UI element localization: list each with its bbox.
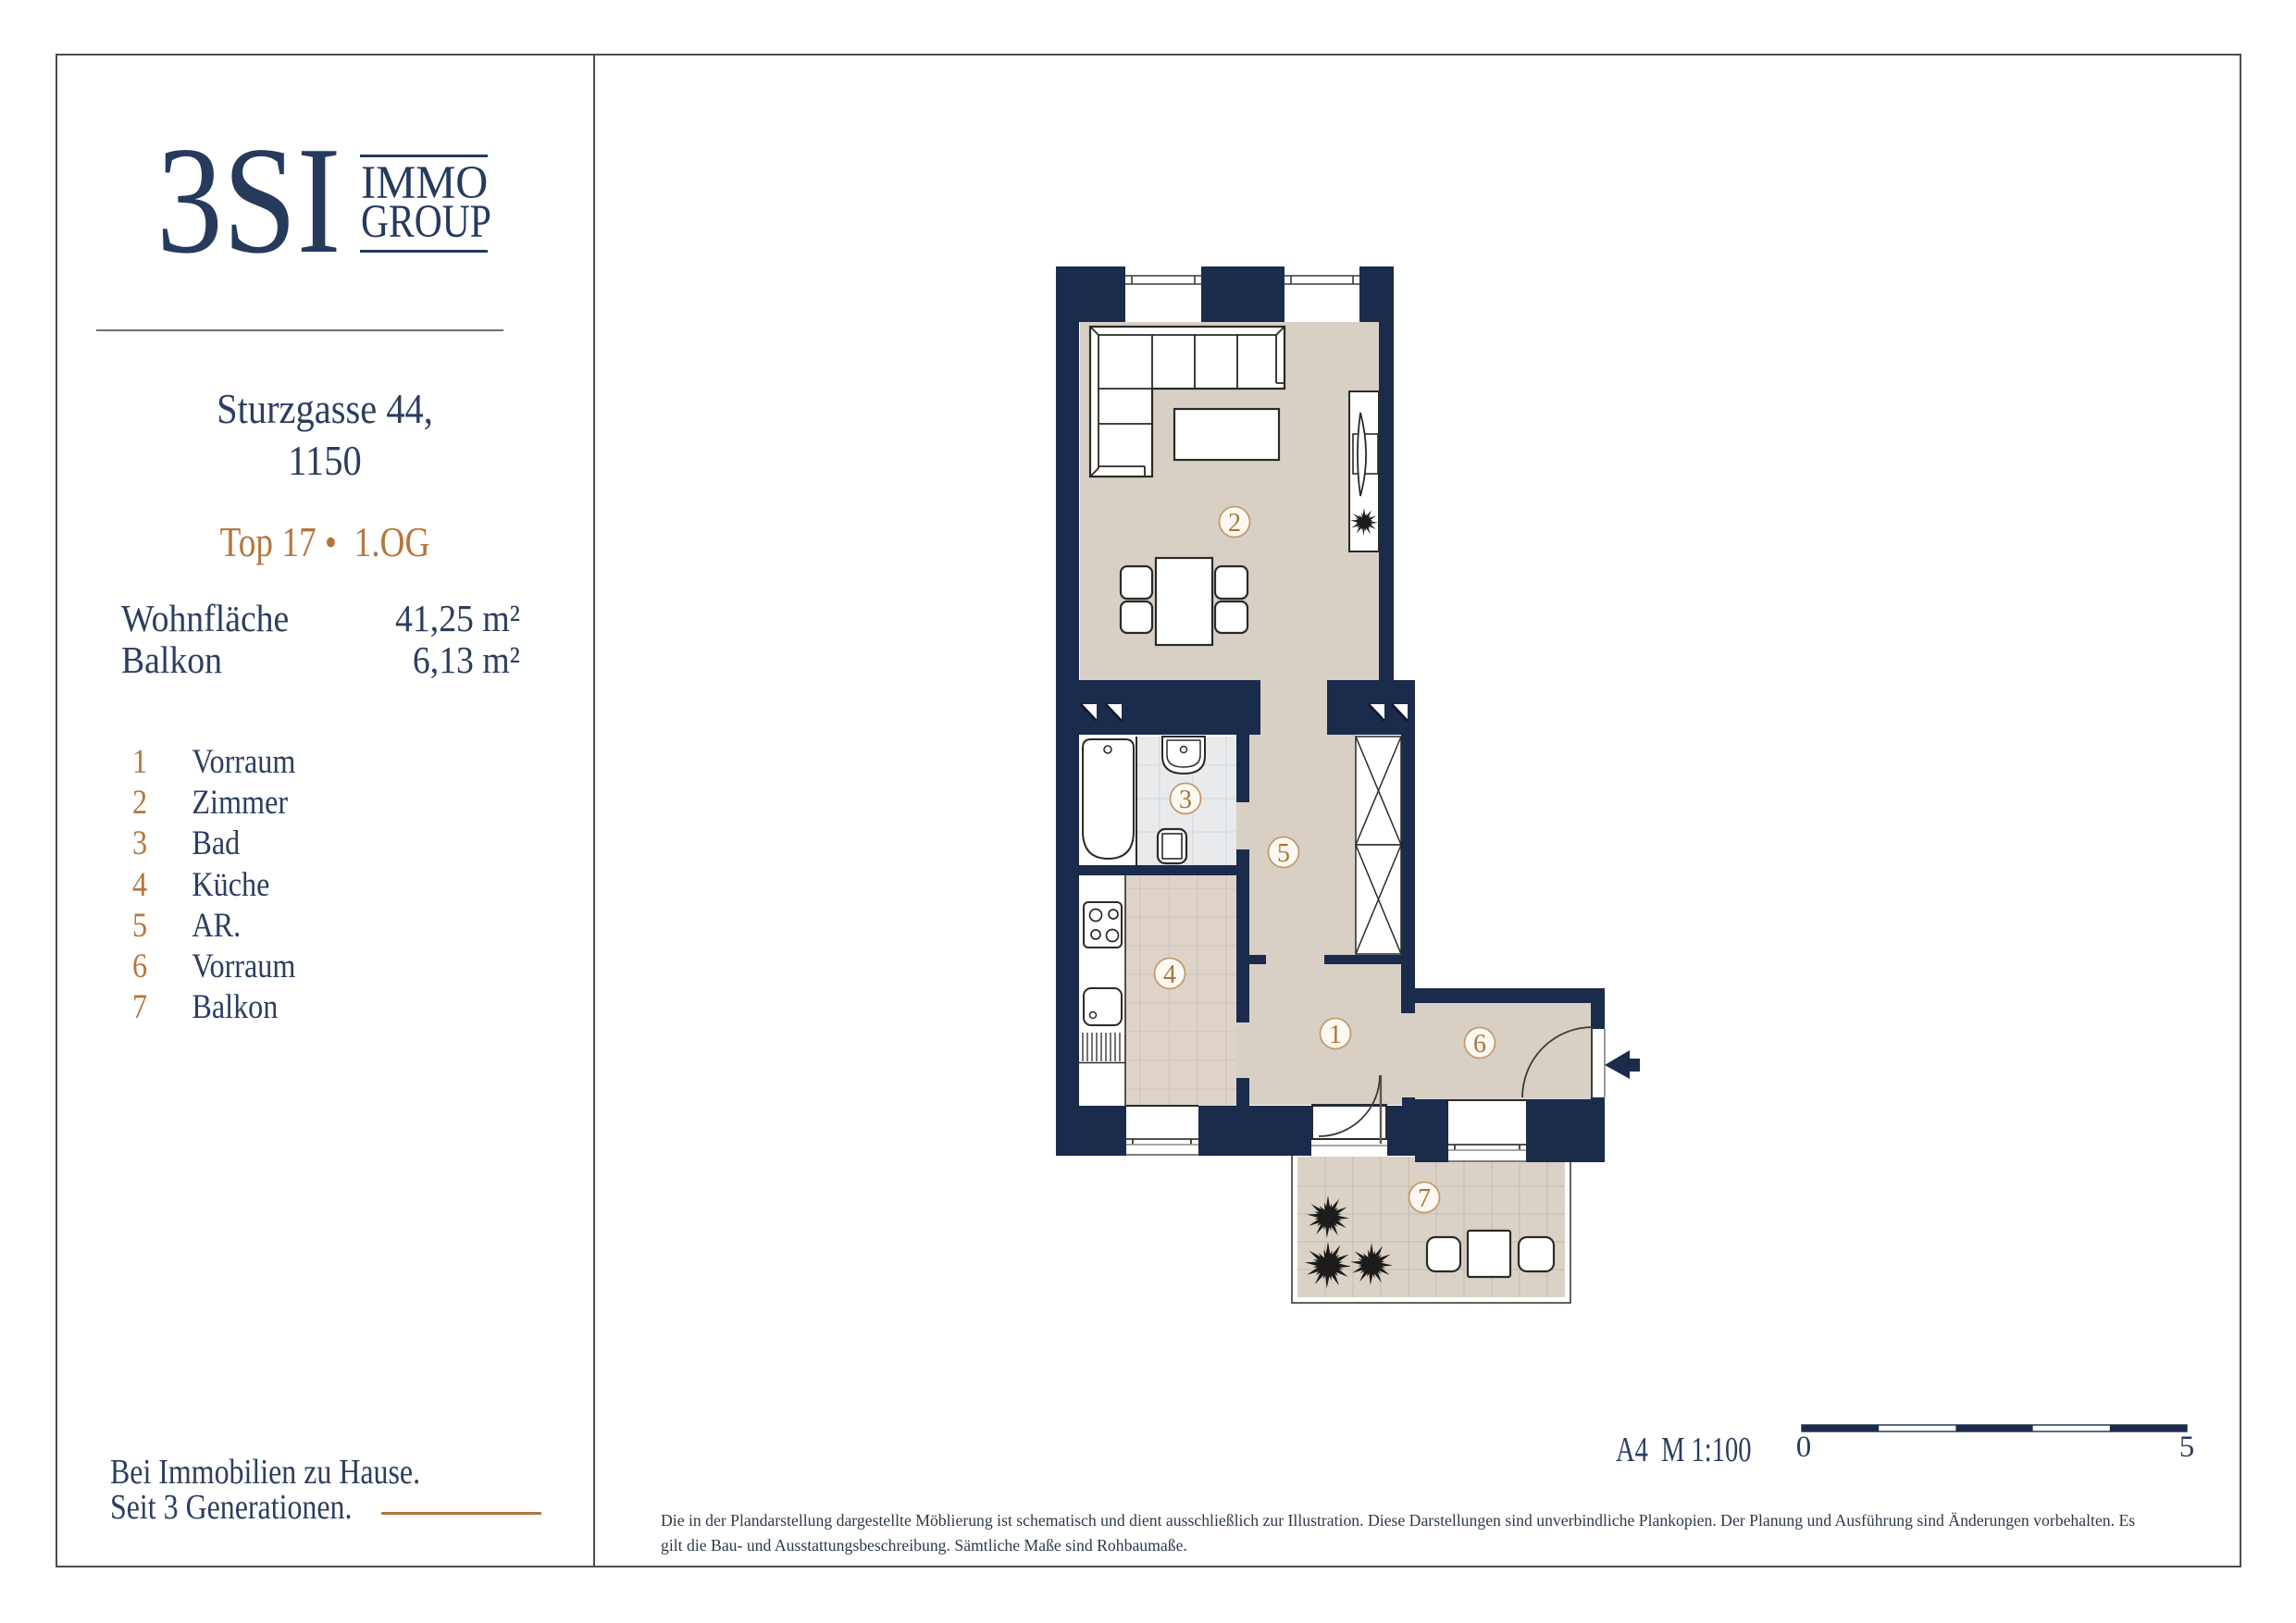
svg-text:1: 1: [1329, 1021, 1342, 1049]
svg-text:3: 3: [1179, 786, 1192, 814]
svg-text:2: 2: [1228, 509, 1241, 538]
svg-text:4: 4: [1163, 960, 1176, 989]
svg-text:7: 7: [1418, 1184, 1431, 1213]
svg-text:6: 6: [1473, 1030, 1486, 1059]
svg-text:5: 5: [1277, 839, 1290, 868]
